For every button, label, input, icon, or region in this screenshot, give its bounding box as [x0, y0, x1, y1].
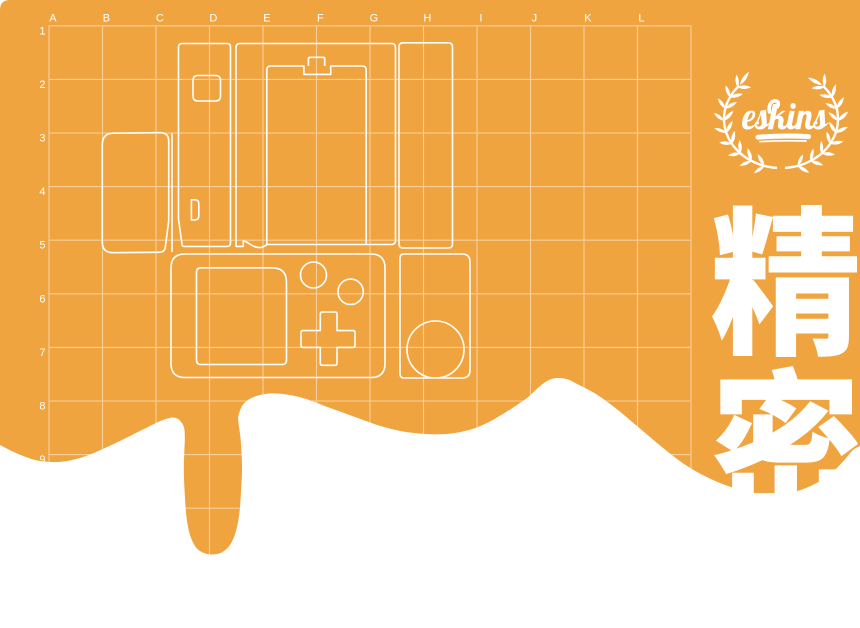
svg-text:B: B: [103, 13, 110, 25]
svg-text:9: 9: [39, 454, 45, 466]
svg-text:G: G: [370, 13, 379, 25]
svg-text:3: 3: [39, 133, 45, 145]
svg-text:K: K: [584, 13, 592, 25]
svg-text:J: J: [532, 13, 538, 25]
svg-text:6: 6: [39, 293, 45, 305]
svg-text:L: L: [638, 13, 644, 25]
svg-text:F: F: [317, 13, 324, 25]
svg-text:2: 2: [39, 79, 45, 91]
svg-text:A: A: [49, 13, 57, 25]
svg-text:1: 1: [39, 25, 45, 37]
svg-text:8: 8: [39, 401, 45, 413]
svg-text:H: H: [423, 13, 431, 25]
svg-text:D: D: [209, 13, 217, 25]
svg-text:7: 7: [39, 347, 45, 359]
svg-text:5: 5: [39, 240, 45, 252]
svg-text:E: E: [263, 13, 270, 25]
svg-text:I: I: [479, 13, 482, 25]
svg-text:4: 4: [39, 186, 45, 198]
svg-text:C: C: [156, 13, 164, 25]
